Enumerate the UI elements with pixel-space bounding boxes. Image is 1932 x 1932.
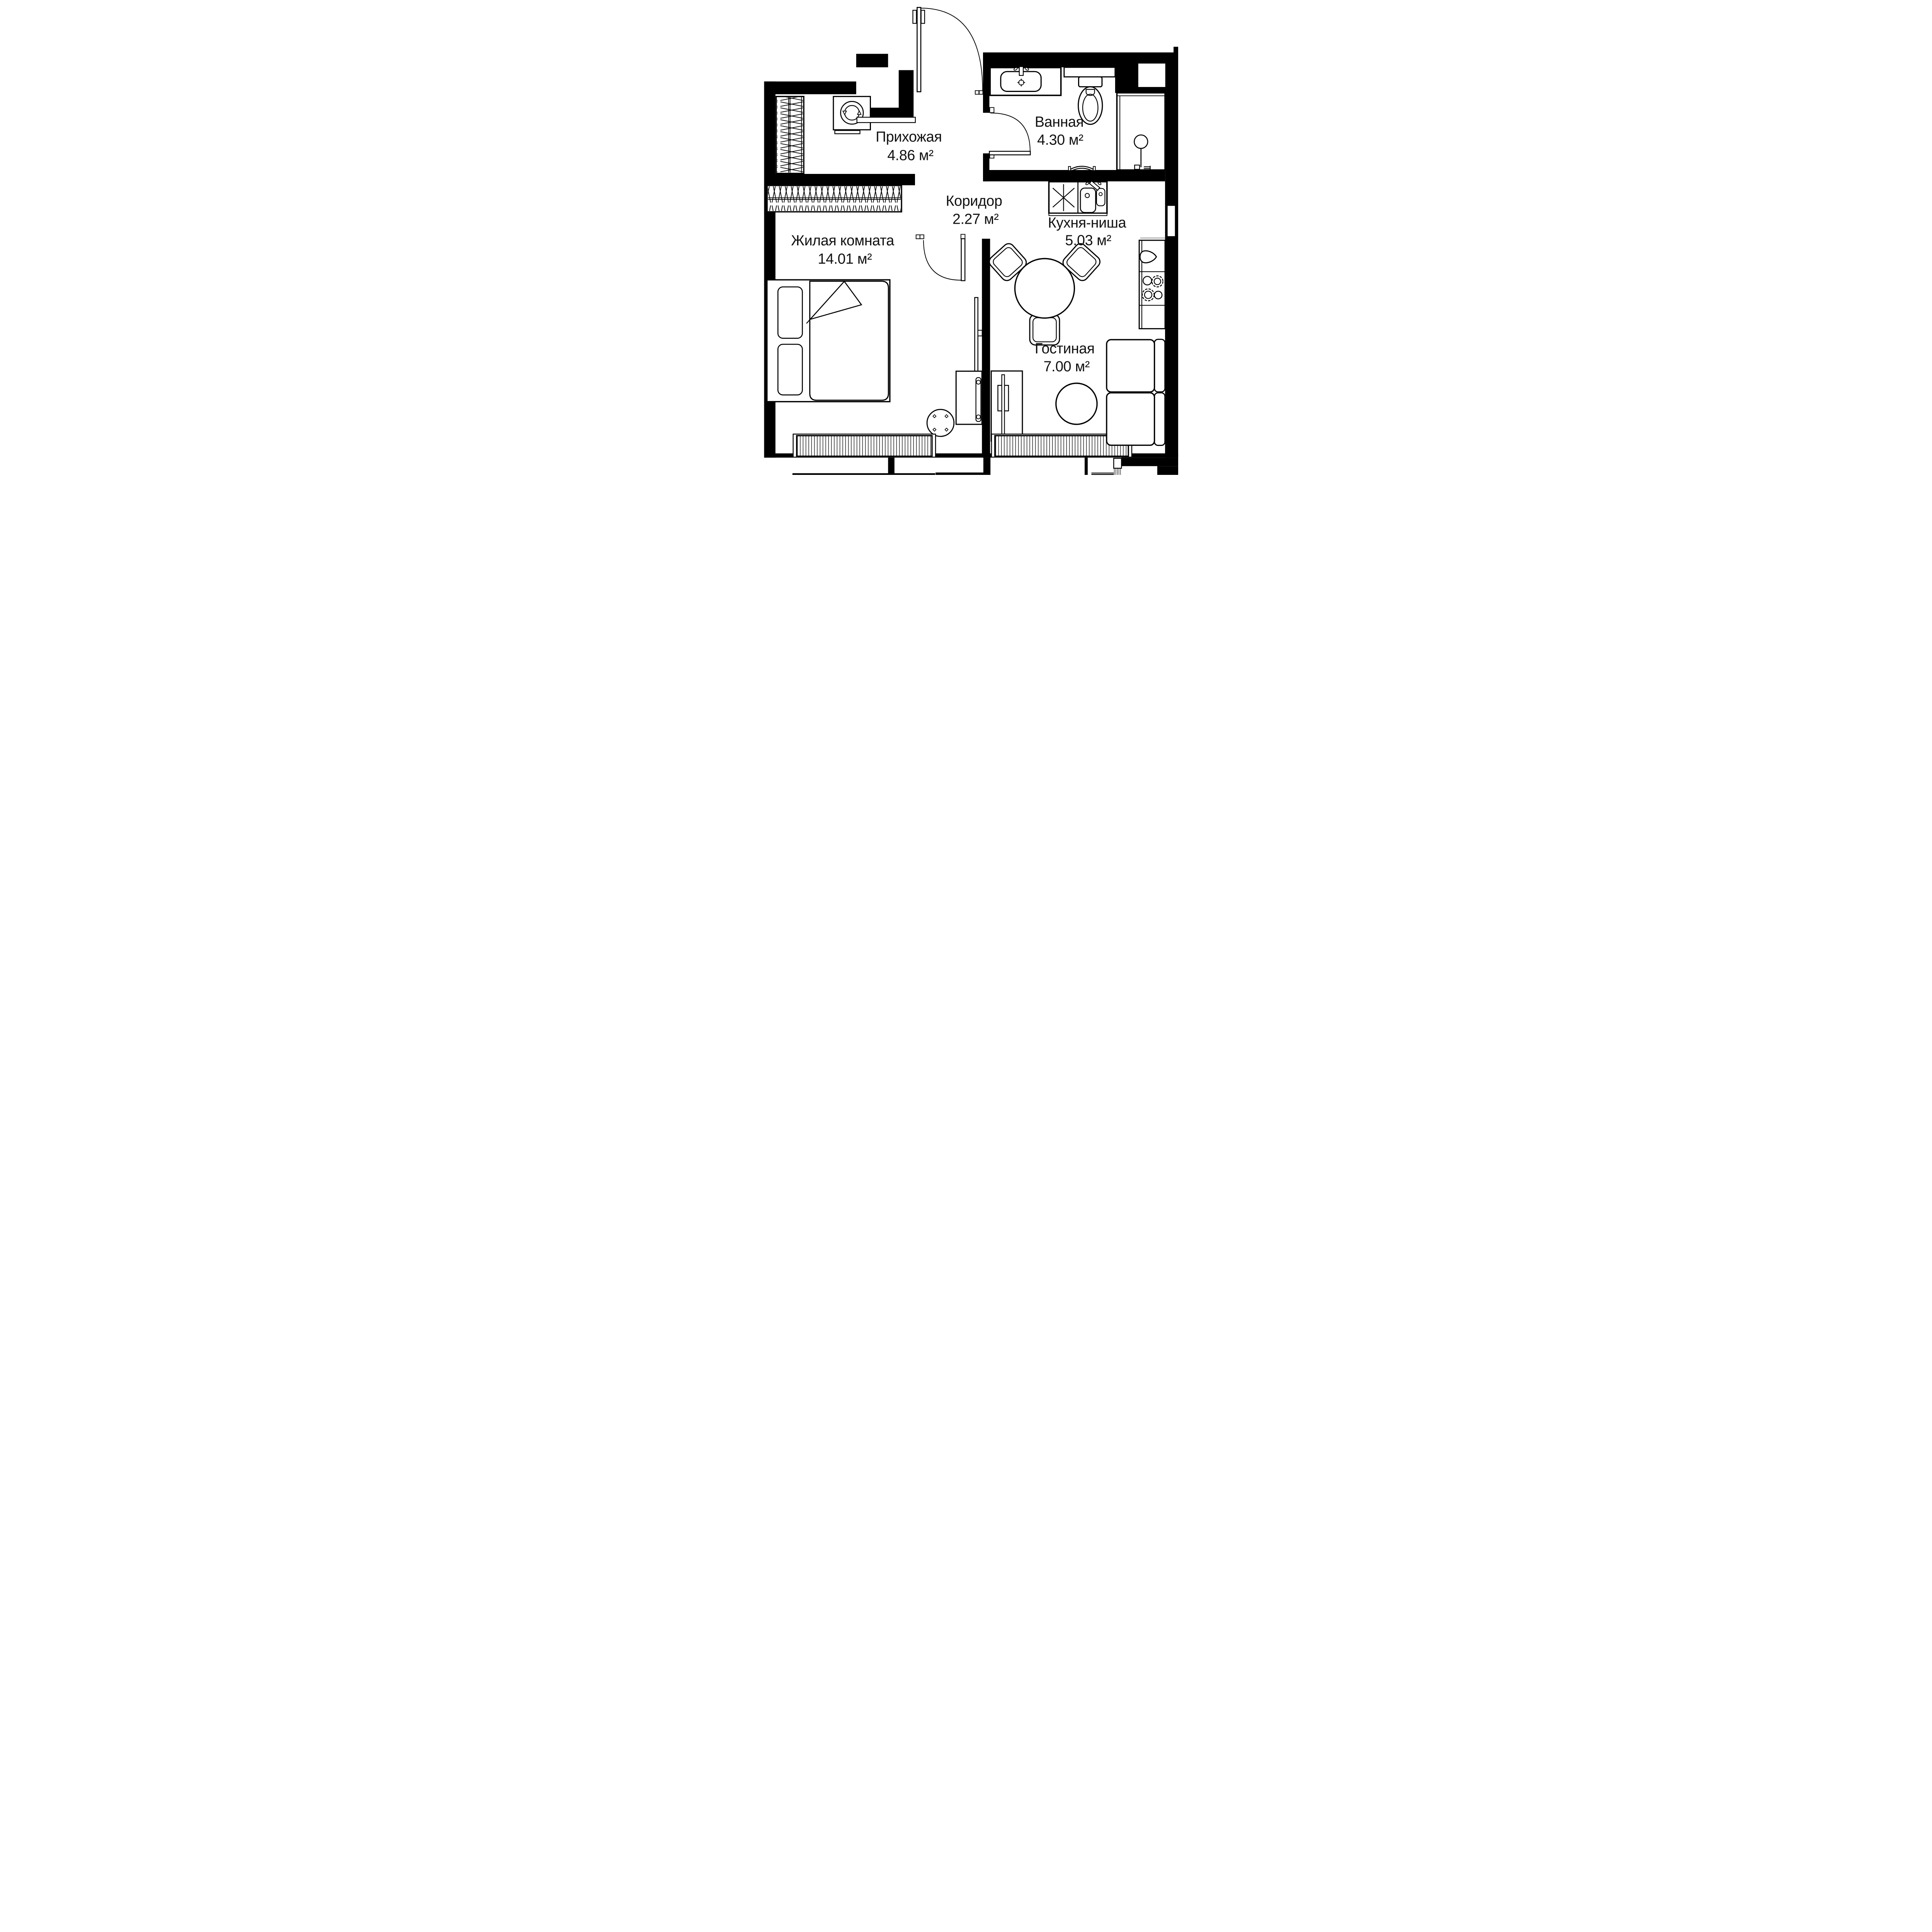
bed-pillow-2 (778, 344, 802, 395)
kitchen-sink-basin-small (1097, 189, 1105, 206)
living-room-door (916, 234, 965, 281)
facade-pier (1085, 457, 1088, 475)
sofa-seat-1 (1107, 340, 1155, 392)
bath-door-jamb-top (990, 107, 994, 112)
living-room-furniture (767, 185, 982, 436)
sofa-back-1 (1155, 339, 1165, 392)
room-door-jamb-2 (920, 235, 924, 239)
wall-bottom-1 (764, 453, 793, 457)
wall-top-right-notch (1173, 47, 1178, 53)
toilet-shelf (1064, 67, 1115, 77)
bath-faucet (1019, 66, 1023, 75)
wardrobe-hangers (768, 186, 901, 211)
facade-stub-1 (888, 457, 895, 475)
bed-pillow-1 (778, 287, 802, 338)
entry-door-frame-left (913, 10, 917, 24)
label-hallway: Прихожая (876, 129, 942, 145)
coffee-table (1056, 383, 1097, 424)
tv-panel-living (975, 298, 978, 372)
entry-door-strike-1 (975, 91, 979, 94)
wall-hall-south (764, 174, 915, 185)
entry-door-frame-right (921, 10, 925, 24)
floor-plan-page: Прихожая 4.86 м² Ванная 4.30 м² Коридор … (753, 0, 1179, 475)
wall-top-hall (764, 82, 856, 94)
toilet-tank (1078, 77, 1102, 87)
facade-block-corner (1157, 466, 1178, 475)
entry-door-arc (921, 8, 983, 91)
washer-front-panel (835, 131, 860, 134)
facade-hatch (1114, 468, 1121, 475)
area-living-room: 14.01 м² (818, 250, 872, 267)
sofa (1107, 339, 1165, 445)
floor-plan: Прихожая 4.86 м² Ванная 4.30 м² Коридор … (753, 0, 1179, 475)
wall-entry-step (856, 54, 888, 67)
tv-panel-lounge (1002, 375, 1005, 435)
area-hallway: 4.86 м² (887, 147, 933, 163)
facade-block-right (1121, 457, 1178, 466)
round-side-table (927, 410, 954, 437)
entry-door-strike-2 (979, 91, 983, 94)
dresser-knob-2 (976, 415, 980, 419)
label-lounge: Гостиная (1035, 340, 1095, 356)
wall-bath-west-upper (983, 67, 989, 113)
window-niche-right (1167, 206, 1175, 237)
entry-door (913, 7, 983, 94)
facade-stub-2 (983, 457, 990, 475)
lounge-furniture (991, 371, 1097, 441)
room-door-arc (923, 240, 961, 280)
area-bathroom: 4.30 м² (1037, 131, 1083, 148)
dresser-knob-1 (976, 380, 980, 384)
label-bathroom: Ванная (1035, 114, 1084, 130)
wall-bath-south (983, 170, 1165, 181)
room-door-frame-top (961, 234, 965, 238)
bath-door-leaf (989, 151, 1030, 155)
wall-bottom-3 (1132, 453, 1178, 457)
facade-bar-center (935, 473, 984, 475)
wall-entry-left-jamb (899, 70, 913, 117)
entry-ledge (857, 117, 915, 122)
room-door-leaf (961, 239, 965, 281)
towel-rail-end-left (1068, 167, 1071, 171)
facade-bar-left (793, 473, 935, 475)
label-kitchen: Кухня-ниша (1048, 214, 1126, 231)
area-corridor: 2.27 м² (952, 211, 998, 227)
facade-box (1114, 458, 1121, 468)
dining-set (987, 241, 1102, 345)
towel-rail-end-right (1093, 167, 1095, 171)
tv-bracket-living (978, 330, 982, 336)
wall-right (1165, 93, 1178, 457)
area-lounge: 7.00 м² (1044, 358, 1090, 374)
dining-table (1015, 259, 1074, 318)
label-corridor: Коридор (946, 193, 1002, 209)
kitchen-sink-basin-large (1080, 188, 1095, 213)
bathroom-door-arc (990, 113, 1030, 151)
area-kitchen: 5.03 м² (1065, 232, 1111, 248)
sofa-back-2 (1155, 393, 1165, 446)
entry-door-leaf (917, 7, 921, 92)
sofa-seat-2 (1107, 393, 1155, 446)
radiator-left (797, 435, 932, 456)
room-door-jamb-1 (916, 235, 920, 239)
wall-divider (982, 239, 990, 457)
label-living-room: Жилая комната (791, 232, 894, 248)
wall-bottom-2 (935, 453, 992, 457)
exterior-shaft-niche (1138, 63, 1166, 87)
